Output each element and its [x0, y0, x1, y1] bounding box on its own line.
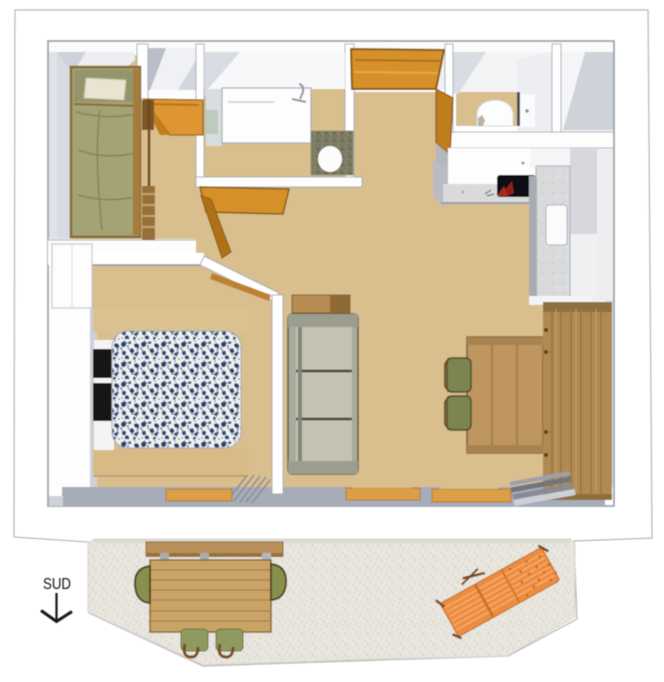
- svg-text:SUD: SUD: [43, 576, 71, 593]
